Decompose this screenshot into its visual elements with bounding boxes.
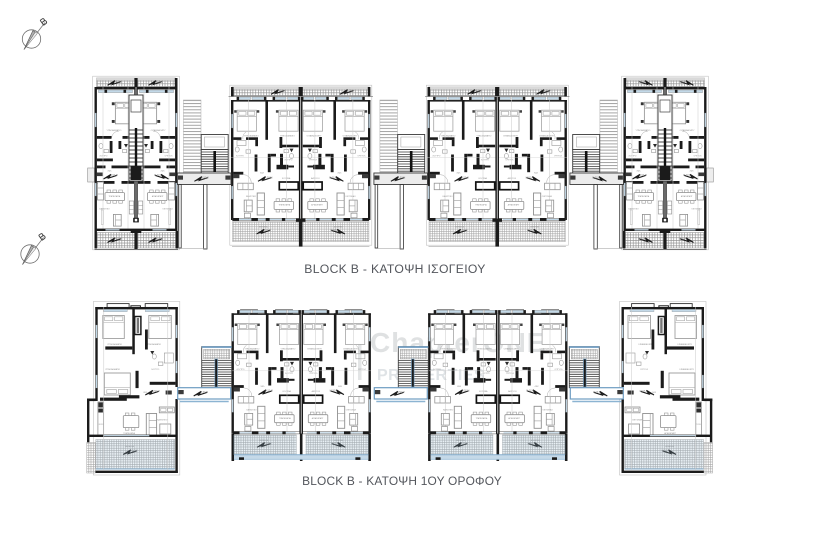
svg-text:BLOCK B - ΚΑΤΟΨΗ 1ΟΥ ΟΡΟΦΟΥ: BLOCK B - ΚΑΤΟΨΗ 1ΟΥ ΟΡΟΦΟΥ — [302, 474, 502, 488]
svg-text:BLOCK B - ΚΑΤΟΨΗ ΙΣΟΓΕΙΟΥ: BLOCK B - ΚΑΤΟΨΗ ΙΣΟΓΕΙΟΥ — [304, 262, 485, 276]
